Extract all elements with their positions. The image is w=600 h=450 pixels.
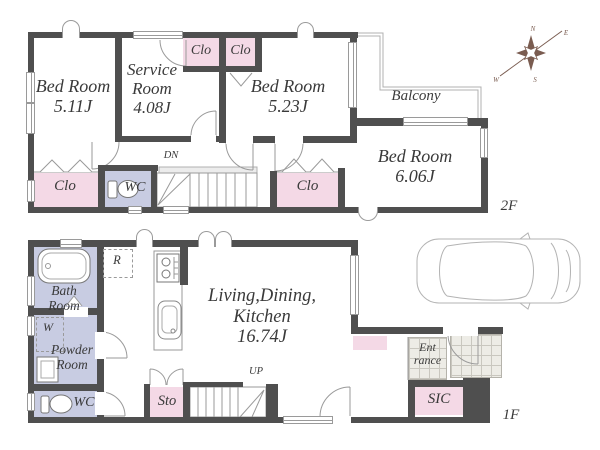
room-size: 6.06J xyxy=(363,166,467,186)
door-arcs-storage xyxy=(150,369,183,385)
stairs-up-label: UP xyxy=(243,366,269,378)
room-label-bedroom-5-23: Bed Room 5.23J xyxy=(232,76,344,116)
room-name: Bath xyxy=(36,283,92,298)
room-size: 5.11J xyxy=(30,96,116,116)
wall xyxy=(144,384,150,417)
window-marker xyxy=(128,206,142,214)
window-marker xyxy=(348,42,357,108)
door-arc-service xyxy=(191,111,216,136)
room-label-wc-1f: WC xyxy=(70,395,98,411)
stairs-2f xyxy=(157,167,257,207)
door-opening xyxy=(226,135,253,144)
door-swing-marker xyxy=(297,22,314,38)
wall xyxy=(28,207,488,213)
room-label-ldk: Living,Dining, Kitchen 16.74J xyxy=(182,286,342,348)
window-marker xyxy=(60,239,82,248)
balcony-outline xyxy=(358,33,481,118)
window-marker xyxy=(27,316,35,336)
window-marker xyxy=(480,128,488,158)
window-marker xyxy=(403,117,468,126)
wall xyxy=(151,171,157,207)
door-opening xyxy=(333,416,351,424)
room-name: Ent xyxy=(409,341,446,354)
washer-label: W xyxy=(39,321,57,334)
wall xyxy=(463,378,490,423)
room-label-wc-2f: WC xyxy=(120,180,150,196)
kitchen-sink-icon xyxy=(158,301,181,339)
room-label-bedroom-5-11: Bed Room 5.11J xyxy=(30,76,116,116)
room-label-closet: Clo xyxy=(226,43,255,59)
wall xyxy=(28,417,490,423)
door-opening xyxy=(443,326,478,336)
window-marker xyxy=(350,255,359,315)
room-label-sic: SIC xyxy=(417,391,461,408)
room-name: Room xyxy=(40,357,104,372)
room-label-service-room: Service Room 4.08J xyxy=(120,60,184,117)
room-label-balcony: Balcony xyxy=(378,88,454,105)
wall xyxy=(219,38,226,143)
compass-w: W xyxy=(493,76,500,84)
room-size: 4.08J xyxy=(120,98,184,117)
window-marker xyxy=(133,31,183,39)
room-label-storage: Sto xyxy=(151,393,183,409)
window-marker xyxy=(163,206,189,214)
refrigerator-label: R xyxy=(105,253,129,267)
compass-n: N xyxy=(530,25,536,33)
room-name: rance xyxy=(409,354,446,367)
door-swing-marker xyxy=(215,231,232,247)
compass-icon: N E S W xyxy=(493,25,569,84)
car-icon xyxy=(417,233,580,309)
room-label-entrance: Ent rance xyxy=(409,341,446,368)
door-arc-living xyxy=(320,387,350,417)
room-name: Room xyxy=(120,79,184,98)
door-opening xyxy=(191,135,216,143)
room-name: Room xyxy=(36,298,92,313)
door-opening xyxy=(275,135,303,144)
toilet-icon-1f xyxy=(41,395,72,413)
wall xyxy=(98,165,158,171)
stove-icon xyxy=(157,254,179,282)
room-name: Bed Room xyxy=(232,76,344,96)
wall xyxy=(255,38,262,69)
room-label-bathroom: Bath Room xyxy=(36,283,92,313)
wall xyxy=(183,66,262,72)
window-marker xyxy=(27,276,35,306)
wall xyxy=(180,247,188,285)
room-name: Bed Room xyxy=(30,76,116,96)
room-name: Service xyxy=(120,60,184,79)
wall xyxy=(183,382,190,417)
room-label-bedroom-6-06: Bed Room 6.06J xyxy=(363,146,467,186)
door-swing-marker xyxy=(62,20,80,38)
room-label-closet: Clo xyxy=(183,43,219,59)
wall xyxy=(190,382,243,387)
wall xyxy=(266,384,278,417)
room-name: Bed Room xyxy=(363,146,467,166)
room-name: Powder xyxy=(40,342,104,357)
floor-plan: N E S W xyxy=(0,0,600,450)
room-label-powder-room: Powder Room xyxy=(40,342,104,372)
room-name: Living,Dining, xyxy=(182,286,342,307)
door-arc-bedroom-b xyxy=(226,143,253,170)
room-name: Kitchen xyxy=(182,307,342,328)
compass-e: E xyxy=(563,29,569,37)
wall xyxy=(338,168,345,207)
room-size: 5.23J xyxy=(232,96,344,116)
room-label-closet: Clo xyxy=(280,178,335,195)
window-marker xyxy=(283,416,333,424)
door-swing-marker xyxy=(136,229,153,247)
plan-linework: N E S W xyxy=(0,0,600,450)
wall xyxy=(98,165,105,207)
wall xyxy=(408,380,463,387)
compass-s: S xyxy=(533,76,537,84)
wall xyxy=(270,171,277,207)
room-label-closet: Clo xyxy=(36,178,94,195)
floor-label-1f: 1F xyxy=(494,407,528,424)
kitchen-counter xyxy=(154,251,182,350)
wall xyxy=(351,327,503,334)
door-swing-marker xyxy=(198,231,215,247)
room-size: 16.74J xyxy=(182,327,342,348)
stairs-1f xyxy=(190,387,266,417)
floor-label-2f: 2F xyxy=(492,198,526,215)
window-marker xyxy=(27,180,35,202)
wall xyxy=(28,384,104,391)
window-marker xyxy=(27,393,35,411)
bathtub-icon xyxy=(38,249,90,283)
stairs-down-label: DN xyxy=(157,150,185,162)
door-arc-entrance xyxy=(448,334,478,364)
